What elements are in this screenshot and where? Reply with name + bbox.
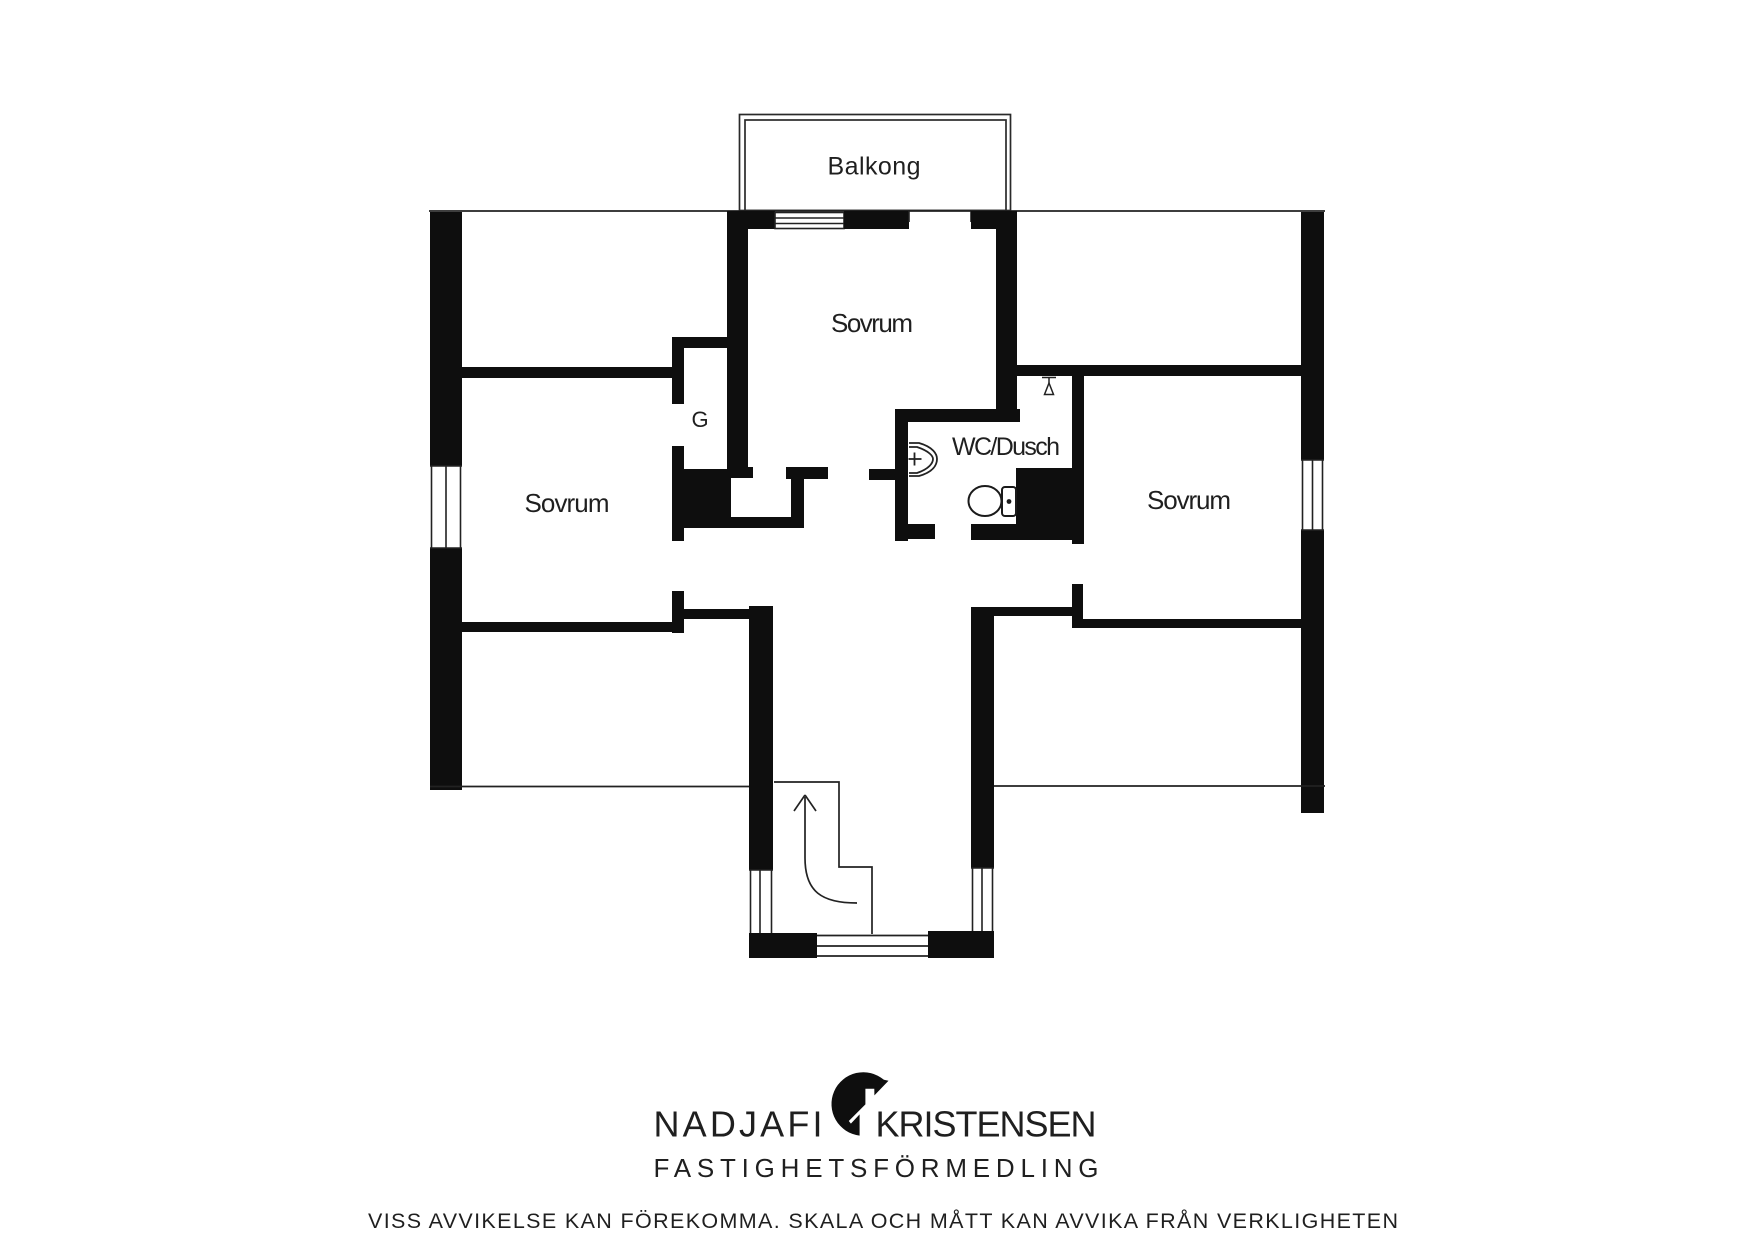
svg-text:FASTIGHETSFÖRMEDLING: FASTIGHETSFÖRMEDLING (654, 1153, 1099, 1183)
svg-text:Sovrum: Sovrum (1147, 485, 1231, 515)
svg-text:Sovrum: Sovrum (525, 488, 610, 518)
svg-text:G: G (691, 407, 708, 432)
svg-text:VISS AVVIKELSE KAN FÖREKOMMA.: VISS AVVIKELSE KAN FÖREKOMMA. SKALA OCH … (368, 1209, 1398, 1233)
svg-text:Balkong: Balkong (828, 153, 921, 181)
svg-text:Sovrum: Sovrum (831, 308, 913, 338)
svg-text:NADJAFI: NADJAFI (654, 1104, 823, 1145)
svg-text:KRISTENSEN: KRISTENSEN (876, 1104, 1097, 1145)
svg-text:WC/Dusch: WC/Dusch (952, 433, 1060, 461)
